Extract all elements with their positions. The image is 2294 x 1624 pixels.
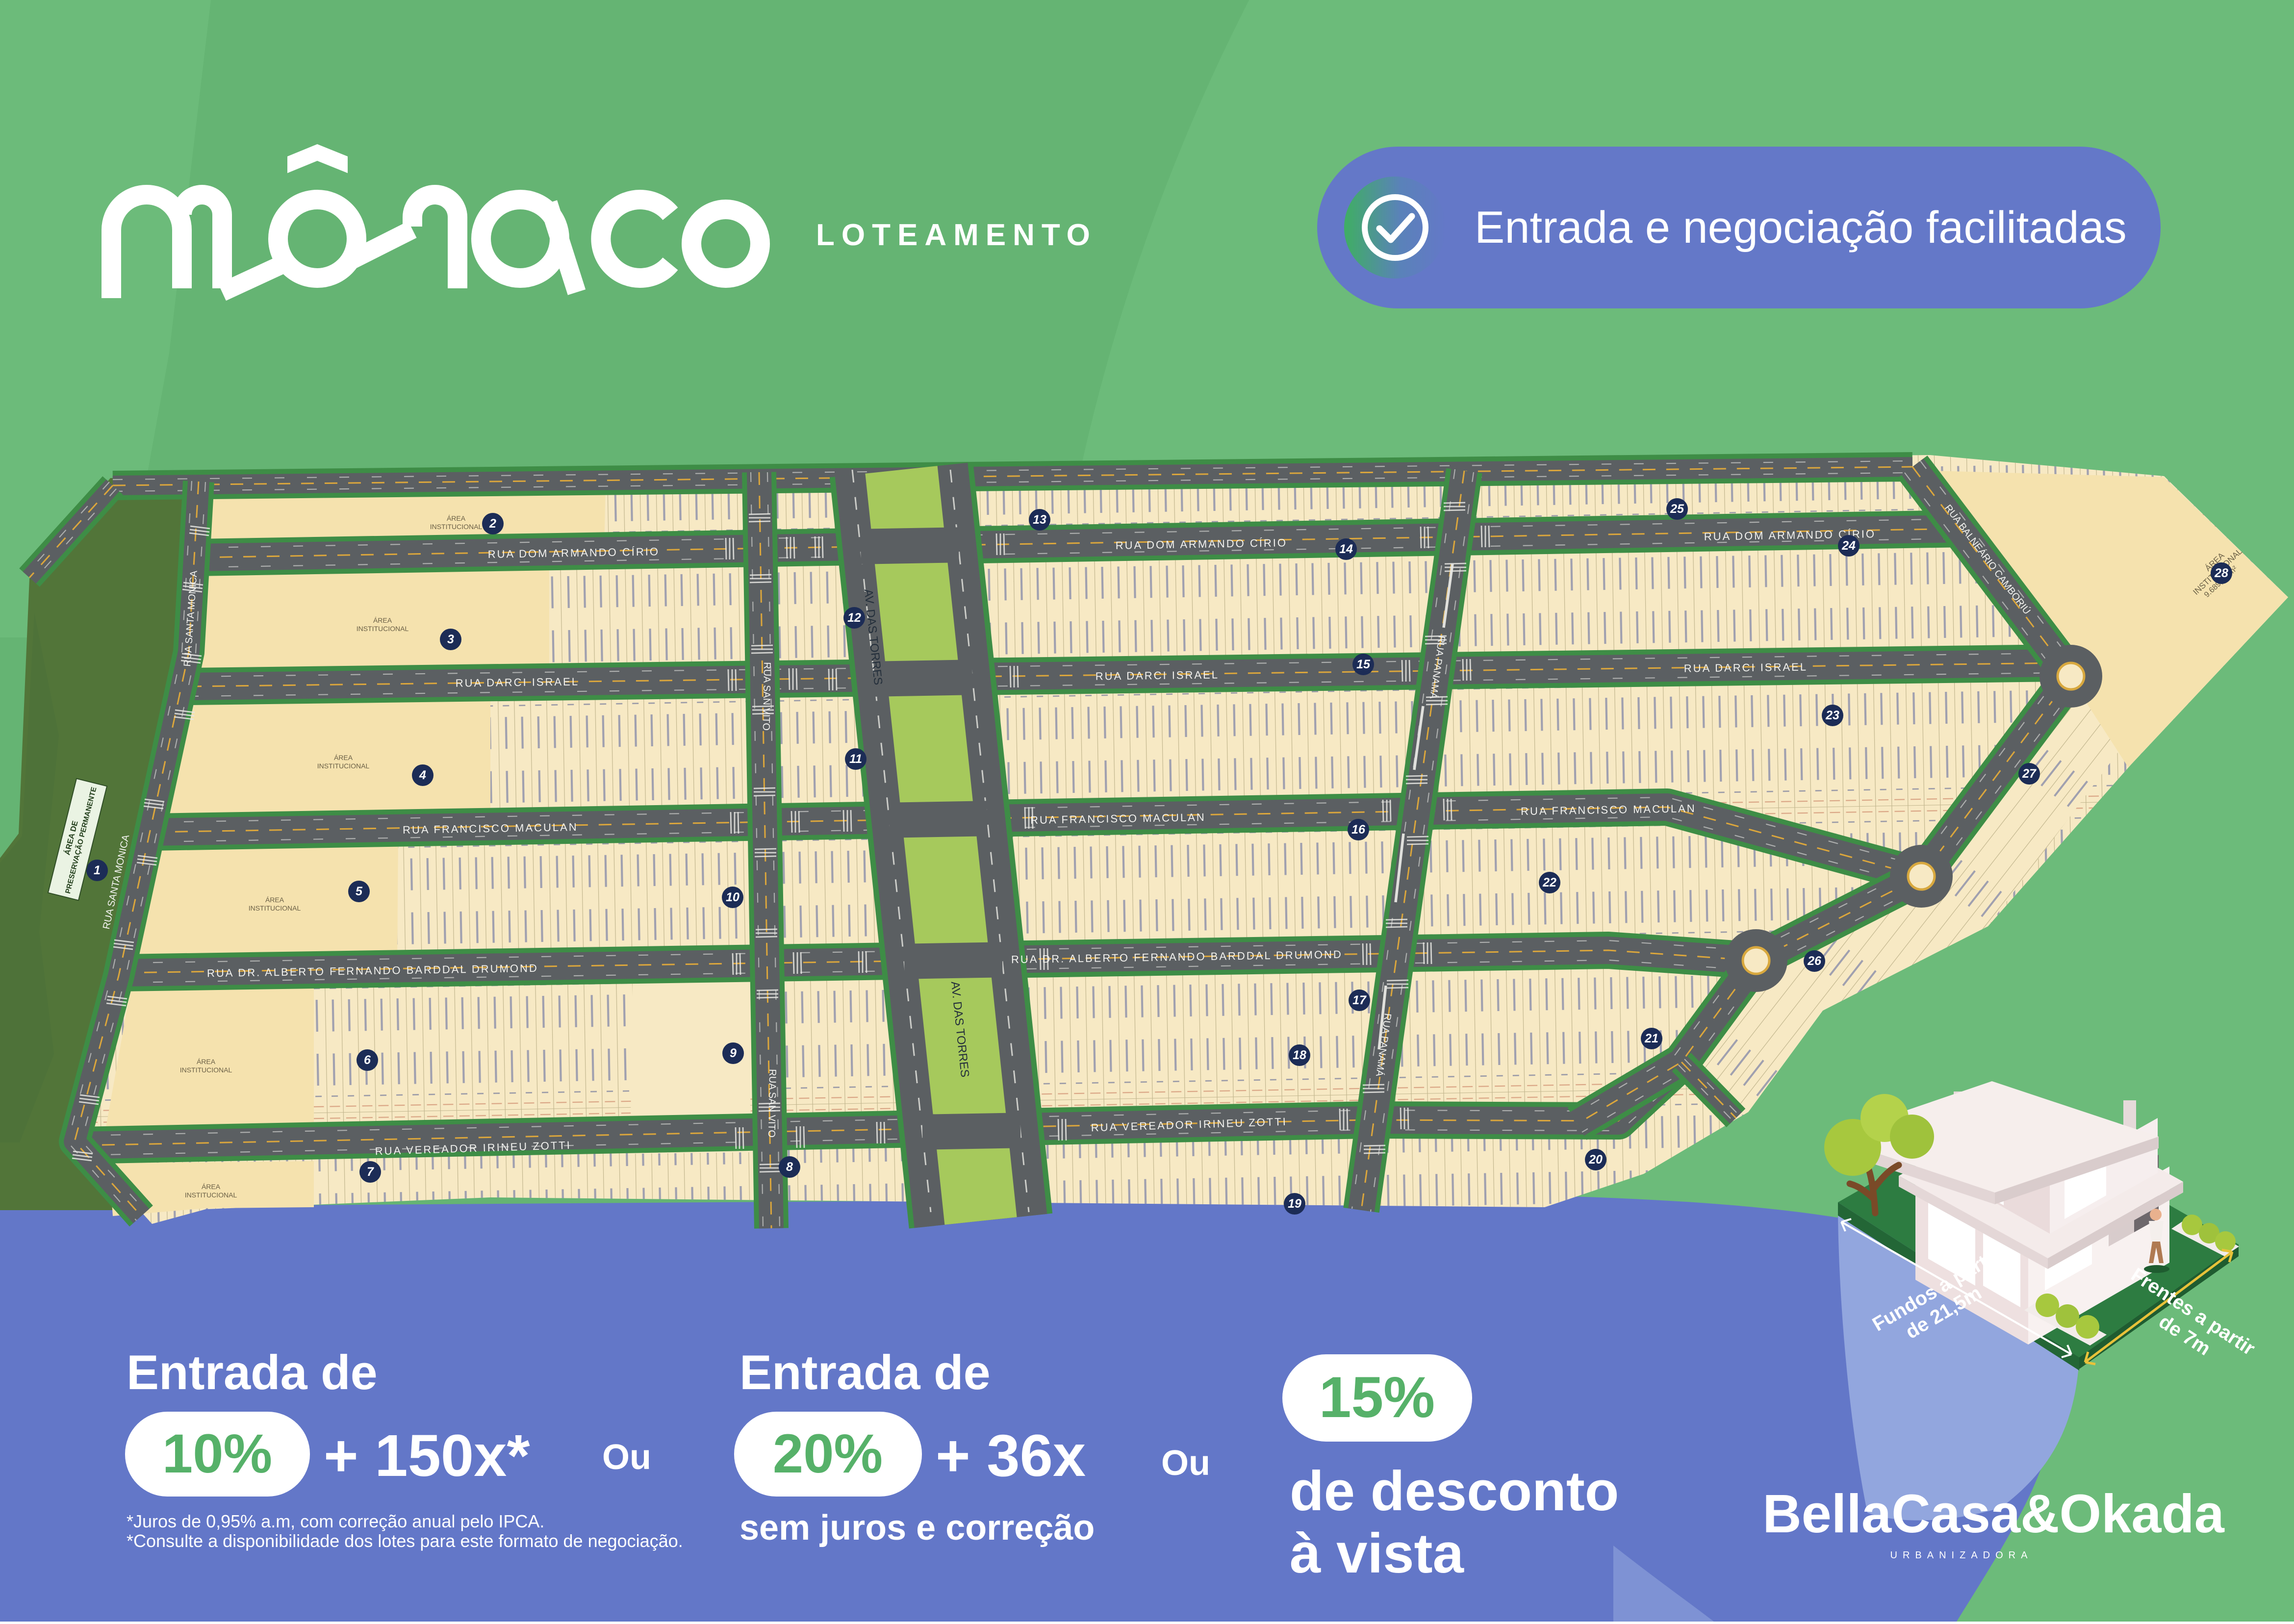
svg-text:ÁREA: ÁREA — [447, 514, 466, 522]
svg-text:27: 27 — [2022, 767, 2037, 781]
svg-text:19: 19 — [1288, 1197, 1301, 1211]
svg-text:RUA SAN VITO: RUA SAN VITO — [761, 662, 772, 731]
svg-text:7: 7 — [367, 1165, 374, 1179]
svg-text:23: 23 — [1825, 709, 1839, 722]
svg-text:sem juros e correção: sem juros e correção — [739, 1508, 1095, 1548]
svg-text:INSTITUCIONAL: INSTITUCIONAL — [317, 762, 370, 770]
svg-text:*Consulte a disponibilidade do: *Consulte a disponibilidade dos lotes pa… — [127, 1531, 683, 1551]
svg-text:RUA DARCI ISRAEL: RUA DARCI ISRAEL — [456, 675, 579, 689]
svg-text:20: 20 — [1588, 1153, 1603, 1167]
svg-text:INSTITUCIONAL: INSTITUCIONAL — [185, 1191, 237, 1199]
svg-text:12: 12 — [847, 611, 861, 625]
svg-text:15: 15 — [1356, 658, 1371, 671]
svg-text:INSTITUCIONAL: INSTITUCIONAL — [357, 625, 409, 633]
svg-text:17: 17 — [1352, 993, 1367, 1007]
svg-text:ÁREA: ÁREA — [334, 754, 353, 761]
svg-text:Entrada de: Entrada de — [739, 1345, 991, 1399]
svg-text:LOTEAMENTO: LOTEAMENTO — [816, 218, 1097, 252]
svg-text:ÁREA: ÁREA — [202, 1183, 221, 1191]
svg-text:4: 4 — [419, 768, 426, 782]
svg-text:URBANIZADORA: URBANIZADORA — [1890, 1550, 2033, 1561]
svg-text:18: 18 — [1293, 1048, 1306, 1062]
svg-text:INSTITUCIONAL: INSTITUCIONAL — [249, 904, 301, 912]
svg-text:13: 13 — [1033, 513, 1046, 527]
svg-text:BellaCasa&Okada: BellaCasa&Okada — [1762, 1484, 2224, 1544]
svg-text:à vista: à vista — [1290, 1522, 1465, 1585]
svg-text:10: 10 — [726, 890, 739, 904]
svg-text:10%: 10% — [162, 1423, 272, 1484]
svg-text:22: 22 — [1542, 876, 1556, 889]
svg-text:RUA SAN VITO: RUA SAN VITO — [766, 1069, 778, 1138]
svg-text:26: 26 — [1807, 954, 1822, 968]
svg-text:15%: 15% — [1319, 1365, 1435, 1430]
svg-text:8: 8 — [786, 1160, 793, 1174]
svg-text:ÁREA: ÁREA — [265, 896, 284, 904]
svg-text:INSTITUCIONAL: INSTITUCIONAL — [430, 523, 483, 531]
svg-text:28: 28 — [2214, 566, 2228, 580]
svg-text:Ou: Ou — [602, 1438, 651, 1477]
svg-text:Entrada de: Entrada de — [127, 1345, 378, 1399]
svg-text:Entrada e negociação facilitad: Entrada e negociação facilitadas — [1475, 203, 2127, 253]
svg-text:Ou: Ou — [1161, 1444, 1210, 1483]
svg-text:3: 3 — [447, 633, 454, 646]
svg-text:9: 9 — [730, 1046, 737, 1060]
svg-text:2: 2 — [489, 517, 496, 531]
svg-text:1: 1 — [94, 863, 101, 877]
svg-text:25: 25 — [1670, 502, 1684, 516]
svg-text:24: 24 — [1841, 539, 1856, 553]
svg-text:20%: 20% — [773, 1423, 883, 1484]
svg-text:de desconto: de desconto — [1290, 1460, 1619, 1522]
svg-text:INSTITUCIONAL: INSTITUCIONAL — [180, 1066, 232, 1074]
svg-text:ÁREA: ÁREA — [197, 1058, 216, 1066]
svg-text:+ 150x*: + 150x* — [324, 1422, 530, 1489]
svg-text:RUA DARCI ISRAEL: RUA DARCI ISRAEL — [1684, 660, 1808, 674]
svg-text:+ 36x: + 36x — [936, 1422, 1086, 1489]
svg-text:14: 14 — [1339, 542, 1353, 556]
svg-text:11: 11 — [849, 752, 862, 766]
svg-text:21: 21 — [1644, 1032, 1658, 1045]
svg-text:5: 5 — [356, 885, 363, 898]
svg-text:RUA DARCI ISRAEL: RUA DARCI ISRAEL — [1096, 668, 1219, 682]
svg-text:6: 6 — [364, 1053, 371, 1067]
svg-text:*Juros de 0,95% a.m, com corre: *Juros de 0,95% a.m, com correção anual … — [127, 1511, 544, 1531]
svg-text:ÁREA: ÁREA — [373, 616, 392, 624]
svg-text:16: 16 — [1351, 823, 1366, 837]
